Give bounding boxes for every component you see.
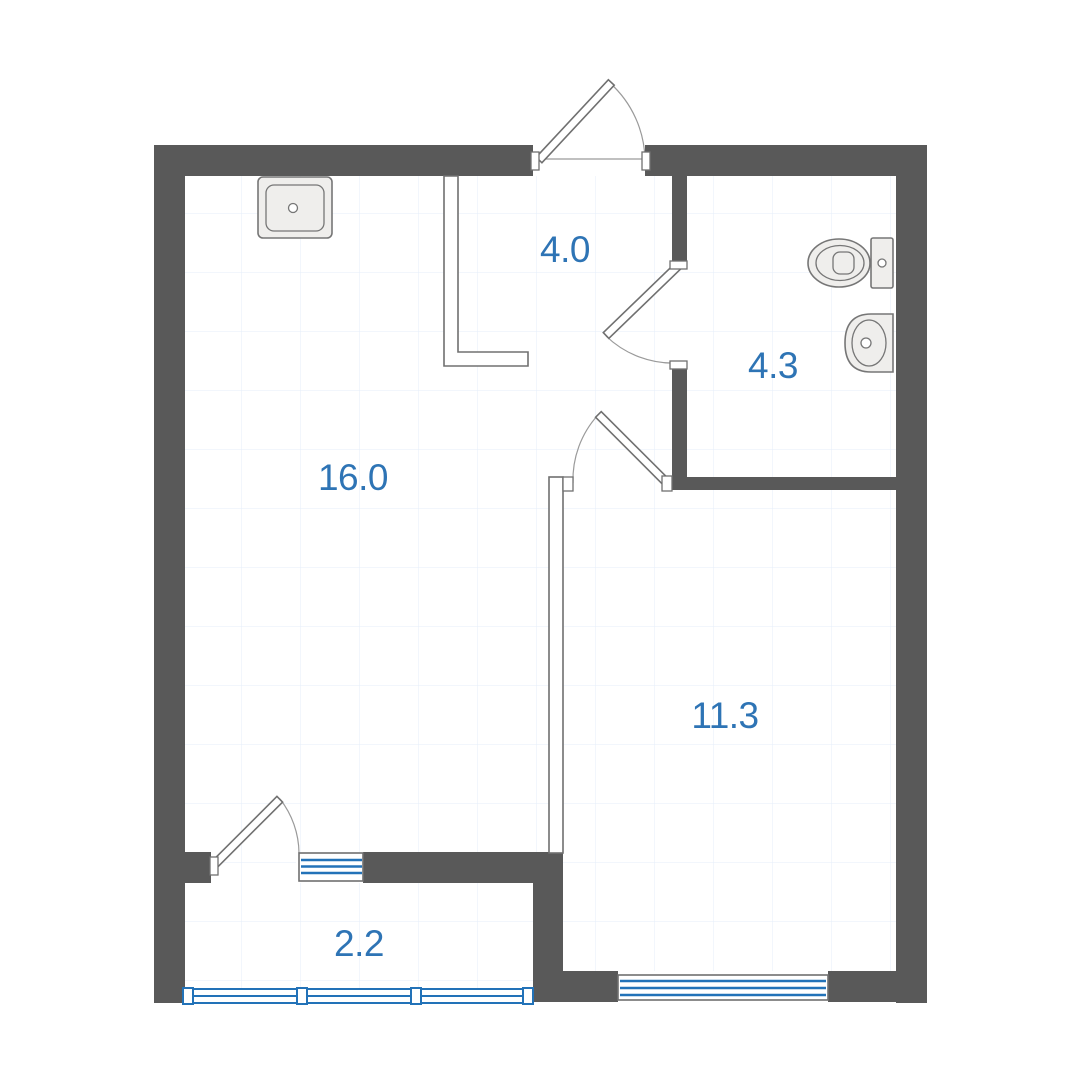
- wall-balcony-divider: [363, 852, 533, 883]
- balcony-glazing: [183, 988, 533, 1004]
- room-area-label-living: 16.0: [318, 457, 388, 498]
- door-jamb: [210, 857, 218, 875]
- wall-bathroom-upper: [672, 176, 687, 262]
- room-area-label-hallway: 4.0: [540, 229, 590, 270]
- living-balcony-window: [299, 853, 363, 881]
- door-jamb: [662, 476, 672, 491]
- room-area-label-room: 11.3: [691, 695, 758, 736]
- wall-bathroom-lower: [672, 369, 687, 490]
- floor-plan-page: 16.0 4.0 4.3 11.3 2.2: [0, 0, 1080, 1080]
- basin-drain: [861, 338, 871, 348]
- toilet-bowl: [808, 239, 870, 287]
- partition-room-living: [549, 477, 563, 853]
- wall-bathroom-bottom: [672, 477, 896, 490]
- glazing-mullion: [523, 988, 533, 1004]
- glazing-mullion: [297, 988, 307, 1004]
- kitchen-sink-icon: [258, 177, 332, 238]
- toilet-button: [878, 259, 886, 267]
- entrance-door: [531, 80, 650, 170]
- floor-plan: 16.0 4.0 4.3 11.3 2.2: [0, 0, 1080, 1080]
- glazing-mullion: [183, 988, 193, 1004]
- wall-right: [896, 145, 927, 1003]
- door-swing-arc: [610, 83, 645, 160]
- door-jamb: [642, 152, 650, 170]
- door-jamb: [563, 477, 573, 491]
- wall-bottom-right-segment: [828, 971, 927, 1002]
- sink-drain: [289, 204, 298, 213]
- wash-basin-icon: [845, 314, 893, 372]
- door-leaf: [536, 80, 614, 163]
- room-area-label-balcony: 2.2: [334, 923, 384, 964]
- toilet-icon: [808, 238, 893, 288]
- wall-top-right: [645, 145, 927, 176]
- glazing-mullion: [411, 988, 421, 1004]
- room-window: [618, 975, 828, 1000]
- wall-top-left: [154, 145, 533, 176]
- wall-balcony-right: [533, 852, 563, 1002]
- room-area-label-bathroom: 4.3: [748, 345, 798, 386]
- wall-left: [154, 145, 185, 1003]
- door-jamb: [531, 152, 539, 170]
- door-jamb: [670, 361, 687, 369]
- door-jamb: [670, 261, 687, 269]
- wall-balcony-stub: [185, 852, 211, 883]
